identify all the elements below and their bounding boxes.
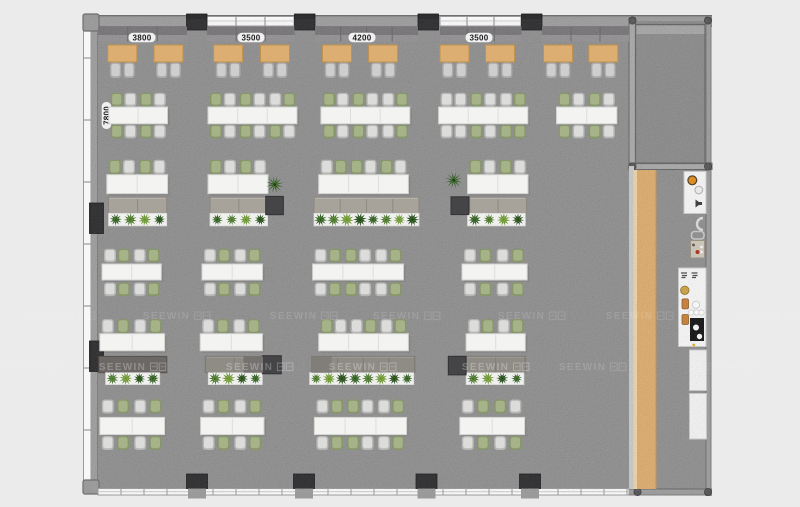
svg-text:SEEWIN: SEEWIN (606, 311, 653, 322)
svg-text:4200: 4200 (353, 33, 372, 42)
svg-text:SEEWIN: SEEWIN (270, 311, 317, 322)
svg-text:3500: 3500 (242, 33, 261, 42)
svg-text:SEEWIN: SEEWIN (143, 311, 190, 322)
svg-text:SEEWIN: SEEWIN (559, 362, 606, 373)
svg-text:SEEWIN: SEEWIN (689, 362, 736, 373)
svg-text:SEEWIN: SEEWIN (226, 362, 273, 373)
svg-text:SEEWIN: SEEWIN (28, 311, 75, 322)
svg-text:3800: 3800 (133, 33, 152, 42)
svg-text:SEEWIN: SEEWIN (99, 362, 146, 373)
svg-text:3500: 3500 (470, 33, 489, 42)
svg-text:SEEWIN: SEEWIN (462, 362, 509, 373)
svg-text:SEEWIN: SEEWIN (373, 311, 420, 322)
svg-text:SEEWIN: SEEWIN (498, 311, 545, 322)
svg-text:SEEWIN: SEEWIN (734, 311, 781, 322)
svg-text:SEEWIN: SEEWIN (329, 362, 376, 373)
svg-text:SEEWIN: SEEWIN (0, 362, 44, 373)
